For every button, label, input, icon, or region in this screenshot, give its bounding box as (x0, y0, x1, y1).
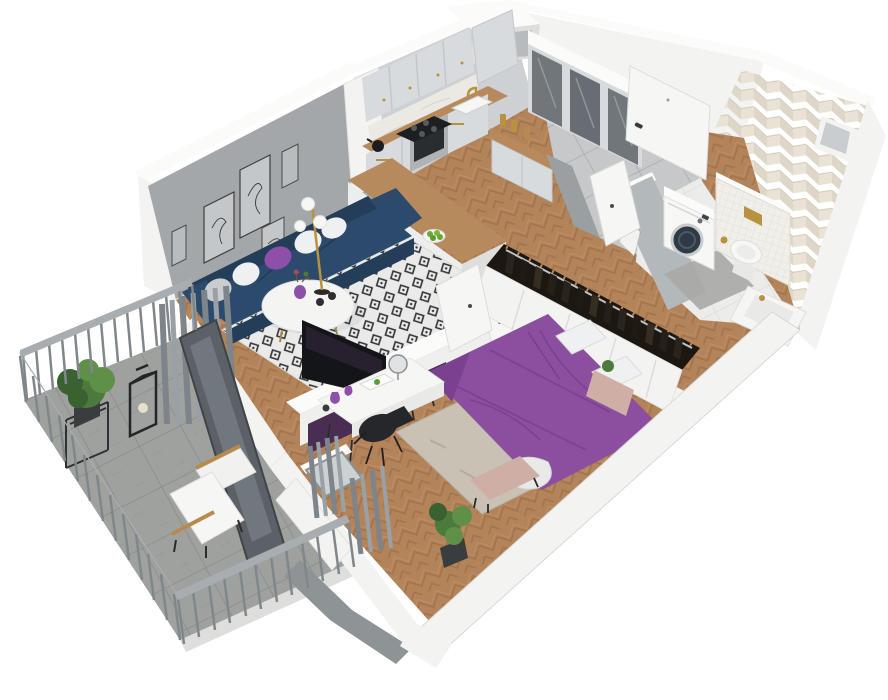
kettle (372, 140, 384, 152)
tub-faucet (759, 295, 765, 301)
desk-mirror (389, 355, 407, 373)
jar (524, 127, 530, 139)
bathroom-door-handle (610, 204, 614, 208)
candle (316, 298, 324, 306)
candle (138, 403, 148, 413)
desk-vase (330, 392, 340, 404)
peephole (667, 99, 670, 102)
jar (511, 120, 517, 132)
nightstand-plant (602, 360, 614, 372)
apartment-3d-floorplan (0, 0, 888, 700)
vase (294, 285, 306, 299)
desk-candle (323, 405, 330, 412)
roll-holder (721, 237, 728, 244)
washer-drum (672, 225, 702, 255)
washer-knob (698, 219, 703, 224)
apartment-render-canvas (0, 0, 888, 700)
jar (500, 114, 506, 126)
